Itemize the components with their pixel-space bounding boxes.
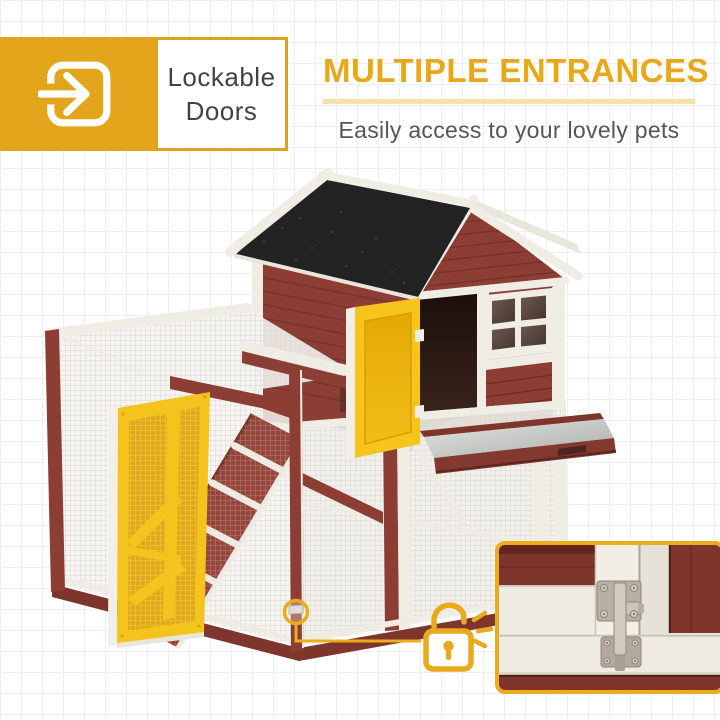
house-window	[486, 288, 552, 360]
latch-closeup-photo	[499, 545, 720, 690]
feature-badge: Lockable Doors	[0, 37, 288, 151]
latch-marker-circle	[285, 601, 308, 624]
latch-closeup-inset	[495, 541, 720, 694]
headline-title: MULTIPLE ENTRANCES	[323, 52, 695, 90]
headline-divider	[323, 99, 695, 104]
badge-icon-box	[0, 37, 155, 151]
door-enter-arrow-icon	[38, 54, 118, 134]
badge-label: Lockable Doors	[155, 37, 288, 151]
badge-label-line1: Lockable	[167, 60, 275, 94]
house-door-open-yellow	[346, 298, 424, 460]
run-door-open-yellow	[108, 392, 210, 648]
headline-block: MULTIPLE ENTRANCES Easily access to your…	[323, 52, 695, 144]
badge-label-line2: Doors	[186, 94, 258, 128]
headline-subtitle: Easily access to your lovely pets	[323, 117, 695, 144]
